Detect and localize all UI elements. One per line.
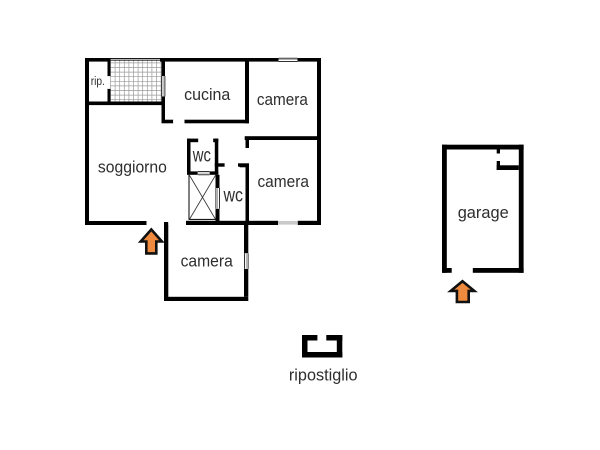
svg-text:garage: garage	[458, 203, 509, 222]
svg-text:ripostiglio: ripostiglio	[289, 365, 358, 384]
svg-text:camera: camera	[257, 90, 308, 109]
svg-text:cucina: cucina	[184, 85, 231, 104]
svg-text:soggiorno: soggiorno	[98, 158, 167, 177]
svg-text:wc: wc	[223, 186, 243, 207]
svg-text:camera: camera	[257, 172, 309, 191]
svg-text:rip.: rip.	[91, 76, 105, 88]
svg-text:wc: wc	[192, 146, 211, 167]
svg-text:camera: camera	[181, 252, 234, 271]
